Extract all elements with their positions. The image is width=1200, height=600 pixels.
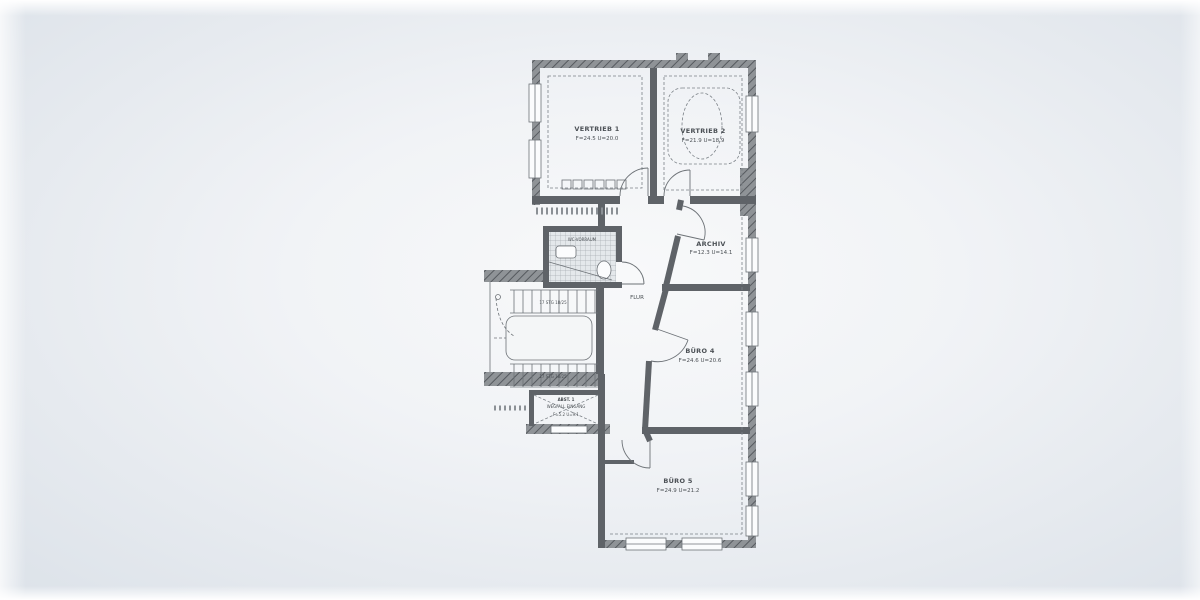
top-wall-pilaster [676, 53, 688, 61]
abstell-name: ABST. 1 [558, 397, 575, 402]
door-wc [622, 262, 644, 284]
window [746, 312, 758, 346]
door-buero4 [651, 329, 688, 362]
wc-sink [556, 246, 576, 258]
buero5-area: F=24.9 U=21.2 [657, 488, 700, 494]
buero5-name: BÜRO 5 [663, 476, 693, 485]
room-vertrieb1: VERTRIEB 1 F=24.5 U=20.0 [574, 125, 619, 142]
scanned-floor-plan-page: WC-VORRAUM 17 STG 18/2 [0, 0, 1200, 600]
archiv-name: ARCHIV [696, 240, 726, 248]
stair-lower-label: 17 STG 18/25 [539, 374, 567, 379]
abstell-area: F=5.2 U=9.1 [553, 412, 579, 417]
window [746, 238, 758, 272]
abstell-note: WEGFALL EINGANG [547, 404, 586, 409]
top-wall-pilaster [708, 53, 720, 61]
window [626, 538, 666, 550]
floor-plan-drawing: WC-VORRAUM 17 STG 18/2 [0, 0, 1200, 600]
window [529, 140, 541, 178]
door-archiv [677, 206, 705, 240]
doors [620, 168, 705, 468]
corridor-slant-walls [645, 200, 681, 441]
vertrieb2-dashed-structure [668, 88, 740, 164]
room-archiv: ARCHIV F=12.3 U=14.1 [690, 240, 733, 256]
wc-area: WC-VORRAUM [549, 232, 616, 282]
window [746, 506, 758, 536]
stair-well [506, 316, 592, 360]
window [746, 462, 758, 496]
window [682, 538, 722, 550]
window [746, 372, 758, 406]
window [529, 84, 541, 122]
vertrieb2-name: VERTRIEB 2 [680, 127, 725, 135]
door-vertrieb1 [620, 168, 648, 196]
vertrieb1-name: VERTRIEB 1 [574, 125, 619, 133]
flur-name: FLUR [630, 295, 644, 301]
room-buero4: BÜRO 4 F=24.6 U=20.6 [679, 346, 722, 364]
buero4-name: BÜRO 4 [685, 346, 715, 355]
wc-label: WC-VORRAUM [568, 237, 597, 242]
archiv-area: F=12.3 U=14.1 [690, 250, 733, 256]
room-vertrieb2: VERTRIEB 2 F=21.9 U=18.9 [680, 127, 725, 144]
buero4-area: F=24.6 U=20.6 [679, 358, 722, 364]
stairwell [490, 282, 598, 387]
door-vertrieb2 [664, 170, 690, 196]
window [746, 96, 758, 132]
vertrieb2-area: F=21.9 U=18.9 [682, 138, 725, 144]
stair-upper-label: 17 STG 18/25 [539, 300, 567, 305]
vertrieb1-area: F=24.5 U=20.0 [576, 136, 619, 142]
vertrieb2-dashed-oval [682, 93, 722, 159]
abstell-radiator [551, 426, 587, 433]
room-buero5: BÜRO 5 F=24.9 U=21.2 [657, 476, 700, 494]
